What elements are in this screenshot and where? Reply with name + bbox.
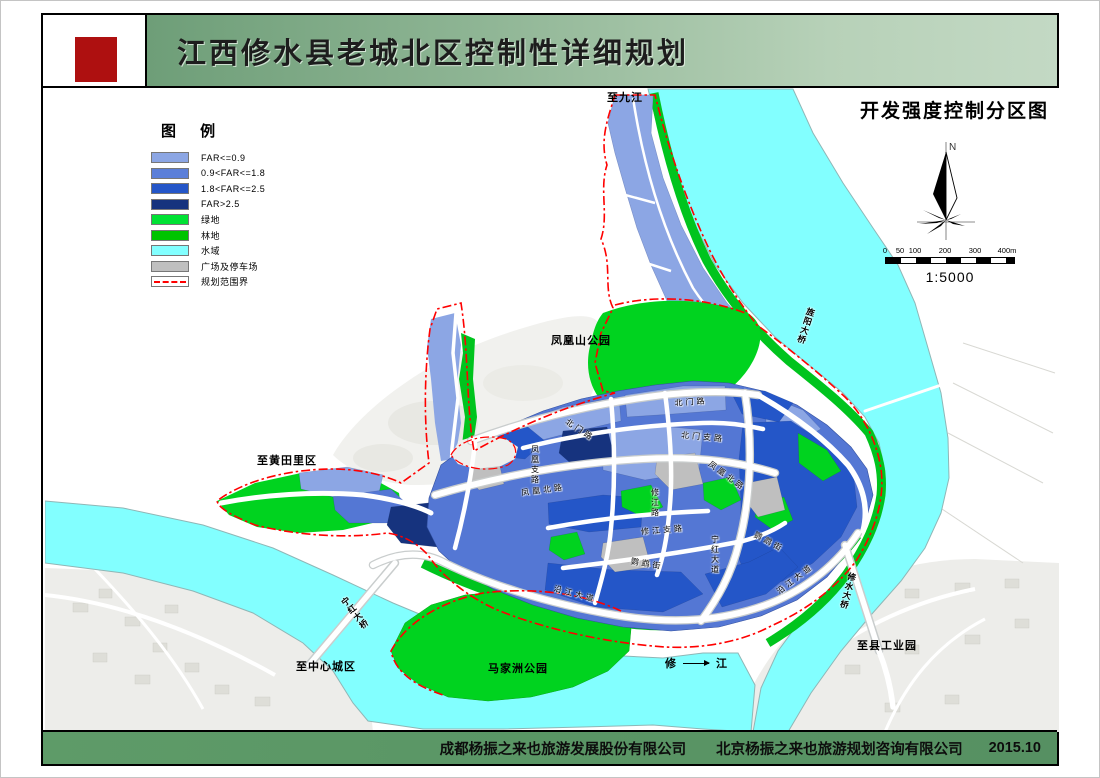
legend-item: 水域 <box>151 243 265 259</box>
label-to-huangtianli: 至黄田里区 <box>257 452 317 468</box>
map-viewport: 开发强度控制分区图 N 0 50 <box>45 88 1059 732</box>
svg-text:N: N <box>949 142 956 153</box>
label-road-xiujiang-lu: 修江路 <box>650 488 661 518</box>
legend-item: 林地 <box>151 228 265 244</box>
compass-icon: N <box>913 136 983 246</box>
legend-swatch <box>151 214 189 225</box>
legend-item: FAR>2.5 <box>151 197 265 213</box>
legend-item: 1.8<FAR<=2.5 <box>151 181 265 197</box>
scale-ticks: 0 50 100 200 300 400m <box>885 246 1015 256</box>
xiu-river-char1: 修 <box>665 655 676 671</box>
map-frame: 江西修水县老城北区控制性详细规划 <box>41 13 1059 766</box>
legend-item: 0.9<FAR<=1.8 <box>151 166 265 182</box>
scale-tick: 400m <box>998 246 1017 255</box>
label-road-fenghuang-zhilu: 凤凰支路 <box>530 445 541 485</box>
legend-swatch <box>151 261 189 272</box>
label-to-jiujiang: 至九江 <box>607 89 643 105</box>
legend-swatch <box>151 199 189 210</box>
label-to-county-industrial-park: 至县工业园 <box>857 637 917 653</box>
label-to-city-center: 至中心城区 <box>296 658 356 674</box>
legend-swatch-boundary <box>151 276 189 287</box>
legend-swatch <box>151 152 189 163</box>
xiu-river-char2: 江 <box>716 655 727 671</box>
header-bar: 江西修水县老城北区控制性详细规划 <box>147 15 1057 88</box>
label-fenghuangshan-park: 凤凰山公园 <box>551 332 611 348</box>
label-road-beimen-lu: 北门路 <box>674 395 708 408</box>
north-arrow: N <box>913 136 983 246</box>
legend-item: 广场及停车场 <box>151 259 265 275</box>
legend-swatch <box>151 183 189 194</box>
legend-swatch <box>151 168 189 179</box>
planning-poster-page: 江西修水县老城北区控制性详细规划 <box>0 0 1100 778</box>
scale-tick: 300 <box>969 246 982 255</box>
label-majiazhou-park: 马家洲公园 <box>488 660 548 676</box>
scale-tick: 0 <box>883 246 887 255</box>
footer-bar: 成都杨振之来也旅游发展股份有限公司 北京杨振之来也旅游规划咨询有限公司 2015… <box>43 730 1057 764</box>
scale-ratio: 1:5000 <box>885 269 1015 285</box>
logo-box <box>43 15 147 88</box>
red-square-logo <box>75 37 117 82</box>
boundary-line-sample <box>154 281 186 283</box>
legend-swatch <box>151 230 189 241</box>
footer-company-1: 成都杨振之来也旅游发展股份有限公司 <box>440 738 687 759</box>
legend-item: 规划范围界 <box>151 274 265 290</box>
footer-date: 2015.10 <box>989 740 1041 756</box>
header: 江西修水县老城北区控制性详细规划 <box>43 15 1057 88</box>
scale-tick: 50 <box>896 246 904 255</box>
footer-company-2: 北京杨振之来也旅游规划咨询有限公司 <box>716 738 963 759</box>
scale-tick: 100 <box>909 246 922 255</box>
legend-swatch <box>151 245 189 256</box>
river-flow-arrow-icon <box>683 663 709 664</box>
page-title: 江西修水县老城北区控制性详细规划 <box>177 30 689 72</box>
legend-item: 绿地 <box>151 212 265 228</box>
label-xiu-river: 修 江 <box>665 655 727 671</box>
legend-item: FAR<=0.9 <box>151 150 265 166</box>
legend: 图 例 FAR<=0.9 0.9<FAR<=1.8 1.8<FAR<=2.5 F… <box>151 120 265 290</box>
scale-bar-graphic <box>885 257 1015 264</box>
label-road-ninghong-dadao: 宁红大道 <box>710 535 721 575</box>
scale-tick: 200 <box>939 246 952 255</box>
map-subtitle: 开发强度控制分区图 <box>860 96 1049 123</box>
legend-title: 图 例 <box>161 120 265 141</box>
scale-bar: 0 50 100 200 300 400m 1:5000 <box>885 246 1015 286</box>
